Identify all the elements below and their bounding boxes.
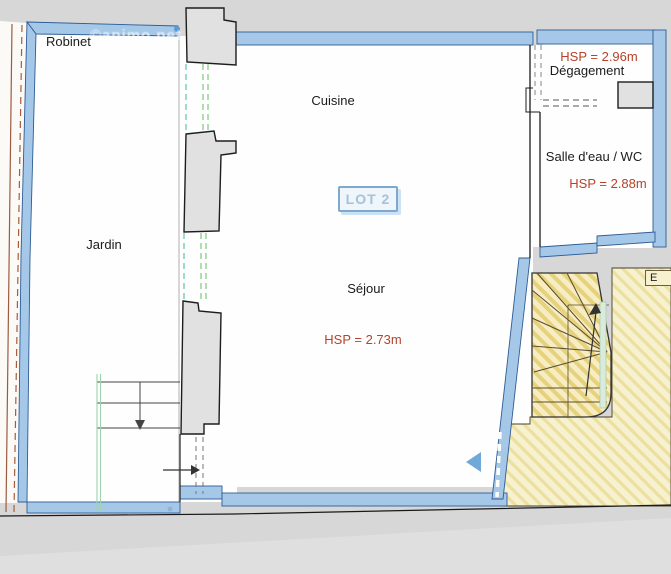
room-label-jardin: Jardin: [86, 238, 121, 251]
wall-right: [653, 30, 666, 247]
stair-winder: [532, 273, 611, 417]
hsp-label-sejour: HSP = 2.73m: [324, 333, 401, 346]
room-label-degagement: Dégagement: [550, 64, 624, 77]
lot-badge-text: LOT 2: [346, 191, 391, 207]
label-robinet: Robinet: [46, 35, 91, 48]
floor-plan-drawing: [0, 0, 671, 574]
room-label-sejour: Séjour: [347, 282, 385, 295]
drain-icon: [168, 507, 173, 512]
stairwell-label-box: E: [645, 270, 671, 286]
stair-railing: [600, 302, 606, 408]
watermark: ©apimo.net: [90, 27, 182, 44]
wall-sejour-bottom-left: [180, 486, 222, 499]
hsp-label-salle-eau: HSP = 2.88m: [569, 177, 646, 190]
room-label-cuisine: Cuisine: [311, 94, 354, 107]
wall-segment-lower: [181, 301, 221, 434]
floor-plan: ©apimo.net Robinet Cuisine HSP = 2.96m D…: [0, 0, 671, 574]
wall-jardin-bottom: [27, 502, 180, 513]
stairwell-label: E: [650, 272, 657, 284]
wall-degagement-top: [537, 30, 657, 44]
lot-badge: LOT 2: [338, 186, 398, 212]
wall-sejour-bottom: [222, 493, 507, 506]
wall-main-top: [236, 32, 533, 45]
room-label-salle-eau: Salle d'eau / WC: [546, 150, 642, 163]
hsp-label-degagement: HSP = 2.96m: [560, 50, 637, 63]
wall-notch-degagement: [618, 82, 653, 108]
